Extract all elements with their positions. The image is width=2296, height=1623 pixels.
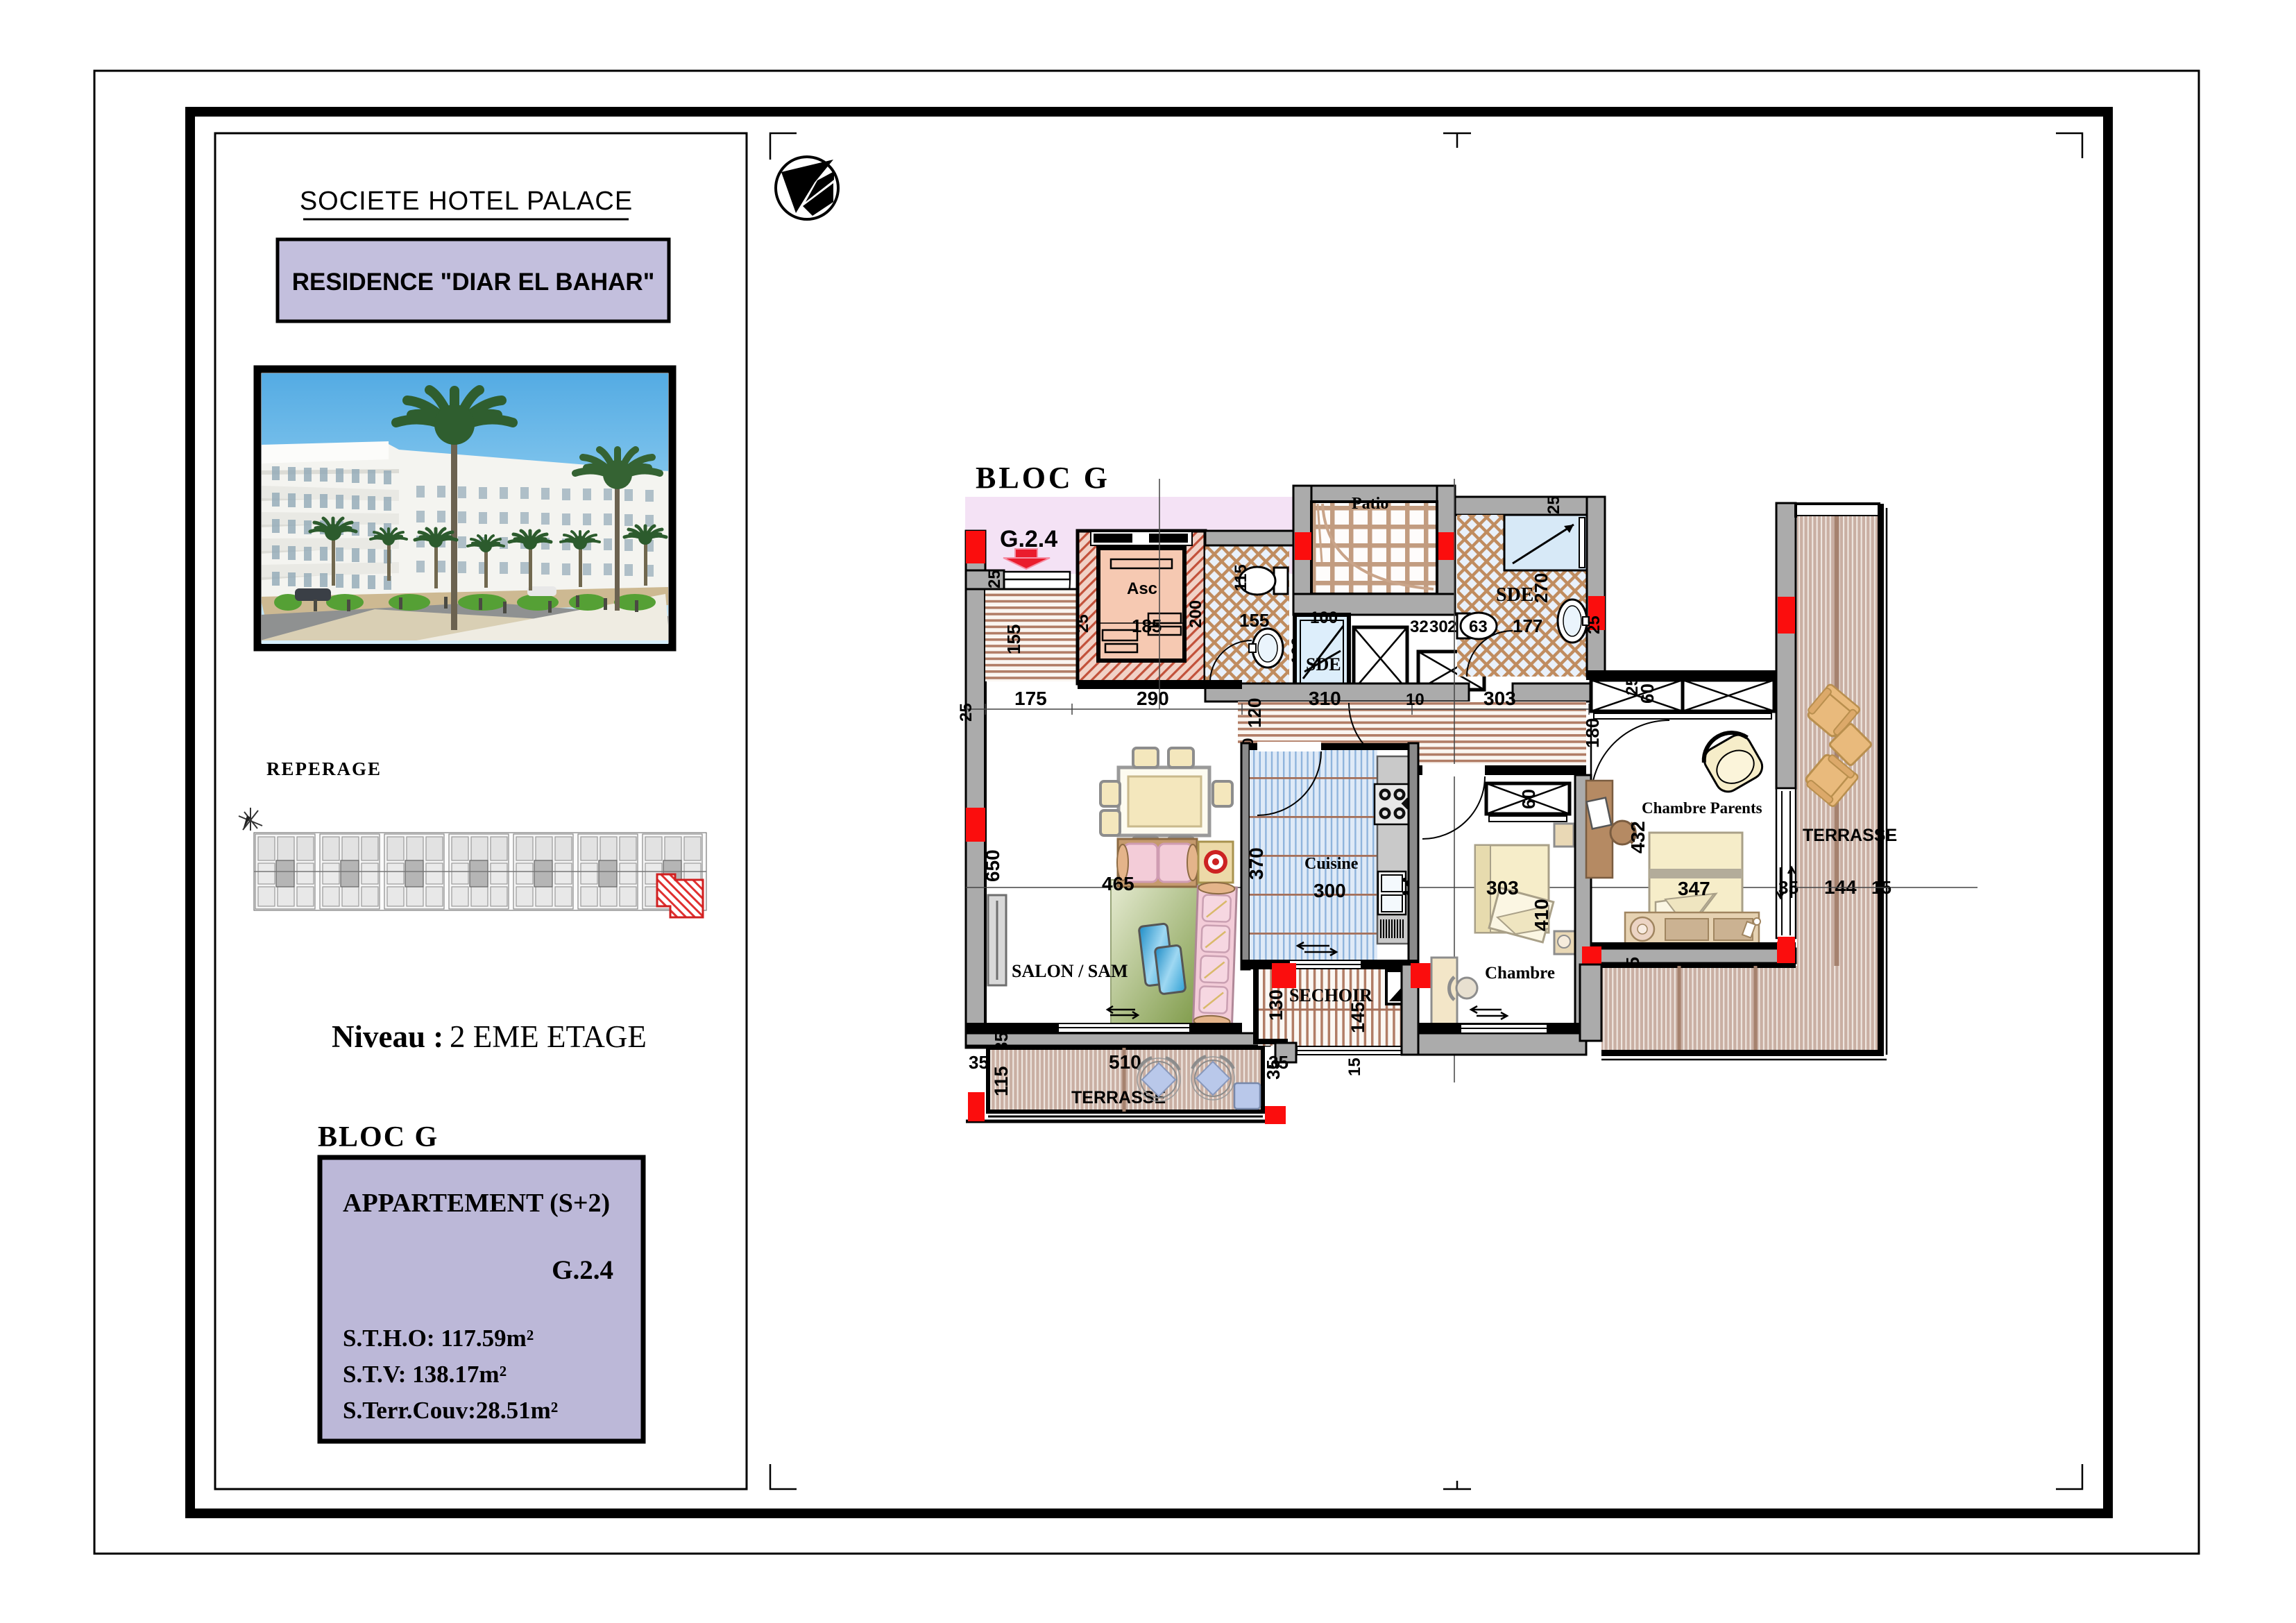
- svg-text:TERRASSE: TERRASSE: [1803, 826, 1897, 845]
- svg-text:Chambre: Chambre: [1485, 964, 1555, 983]
- svg-text:Niveau :: Niveau :: [332, 1019, 443, 1054]
- svg-text:G.2.4: G.2.4: [552, 1255, 613, 1285]
- svg-text:270: 270: [1531, 573, 1551, 603]
- svg-text:25: 25: [985, 570, 1004, 588]
- svg-text:25: 25: [1073, 614, 1092, 633]
- svg-text:25: 25: [1585, 615, 1604, 634]
- svg-text:175: 175: [1014, 688, 1047, 709]
- svg-text:15: 15: [1345, 1057, 1364, 1076]
- svg-text:Patio: Patio: [1352, 495, 1388, 513]
- svg-text:300: 300: [1313, 880, 1346, 901]
- svg-text:35: 35: [1778, 877, 1798, 898]
- svg-text:BLOC G: BLOC G: [318, 1121, 439, 1153]
- svg-text:650: 650: [982, 849, 1003, 882]
- svg-text:REPERAGE: REPERAGE: [266, 758, 382, 779]
- svg-text:303: 303: [1486, 877, 1519, 899]
- svg-text:2 EME ETAGE: 2 EME ETAGE: [450, 1019, 647, 1054]
- svg-text:370: 370: [1245, 847, 1267, 880]
- svg-text:SALON / SAM: SALON / SAM: [1012, 961, 1128, 981]
- svg-text:130: 130: [1266, 989, 1286, 1021]
- svg-text:30: 30: [1429, 618, 1448, 636]
- svg-text:SDE: SDE: [1306, 654, 1341, 674]
- svg-text:410: 410: [1531, 899, 1552, 931]
- svg-text:SDE: SDE: [1496, 584, 1533, 606]
- svg-text:510: 510: [1109, 1051, 1141, 1073]
- svg-text:25: 25: [1623, 677, 1642, 695]
- svg-text:APPARTEMENT (S+2): APPARTEMENT (S+2): [343, 1189, 610, 1218]
- svg-text:S.T.H.O: 117.59m²: S.T.H.O: 117.59m²: [343, 1325, 534, 1352]
- svg-text:35: 35: [969, 1052, 989, 1073]
- svg-text:310: 310: [1309, 688, 1341, 709]
- svg-text:60: 60: [1518, 789, 1539, 809]
- svg-text:290: 290: [1137, 688, 1169, 709]
- svg-text:303: 303: [1483, 688, 1516, 709]
- svg-text:347: 347: [1678, 878, 1710, 899]
- svg-text:S.T.V: 138.17m²: S.T.V: 138.17m²: [343, 1361, 507, 1388]
- svg-text:155: 155: [1003, 624, 1024, 654]
- svg-text:TERRASSE: TERRASSE: [1071, 1088, 1166, 1107]
- svg-text:177: 177: [1513, 615, 1542, 636]
- svg-text:S.Terr.Couv:28.51m²: S.Terr.Couv:28.51m²: [343, 1397, 558, 1424]
- svg-text:115: 115: [1232, 564, 1250, 591]
- svg-text:SOCIETE HOTEL PALACE: SOCIETE HOTEL PALACE: [300, 187, 633, 216]
- svg-text:145: 145: [1347, 1002, 1368, 1033]
- svg-text:BLOC G: BLOC G: [976, 461, 1110, 495]
- svg-text:200: 200: [1187, 600, 1205, 628]
- svg-text:Asc: Asc: [1127, 579, 1157, 598]
- svg-text:32: 32: [1410, 618, 1429, 636]
- svg-text:120: 120: [1244, 698, 1265, 728]
- svg-text:10: 10: [1406, 690, 1425, 709]
- svg-text:180: 180: [1582, 718, 1603, 748]
- svg-text:25: 25: [1545, 495, 1563, 514]
- svg-text:Cuisine: Cuisine: [1304, 855, 1359, 873]
- svg-text:100: 100: [1310, 609, 1338, 627]
- svg-text:465: 465: [1102, 873, 1134, 894]
- svg-text:432: 432: [1627, 821, 1649, 853]
- svg-text:185: 185: [1132, 615, 1162, 636]
- svg-text:115: 115: [991, 1066, 1012, 1096]
- svg-text:63: 63: [1469, 618, 1488, 636]
- svg-text:35: 35: [1268, 1052, 1289, 1073]
- svg-text:155: 155: [1239, 610, 1269, 631]
- svg-text:25: 25: [957, 703, 976, 722]
- svg-text:Chambre Parents: Chambre Parents: [1642, 799, 1762, 817]
- svg-text:RESIDENCE "DIAR EL BAHAR": RESIDENCE "DIAR EL BAHAR": [292, 269, 655, 296]
